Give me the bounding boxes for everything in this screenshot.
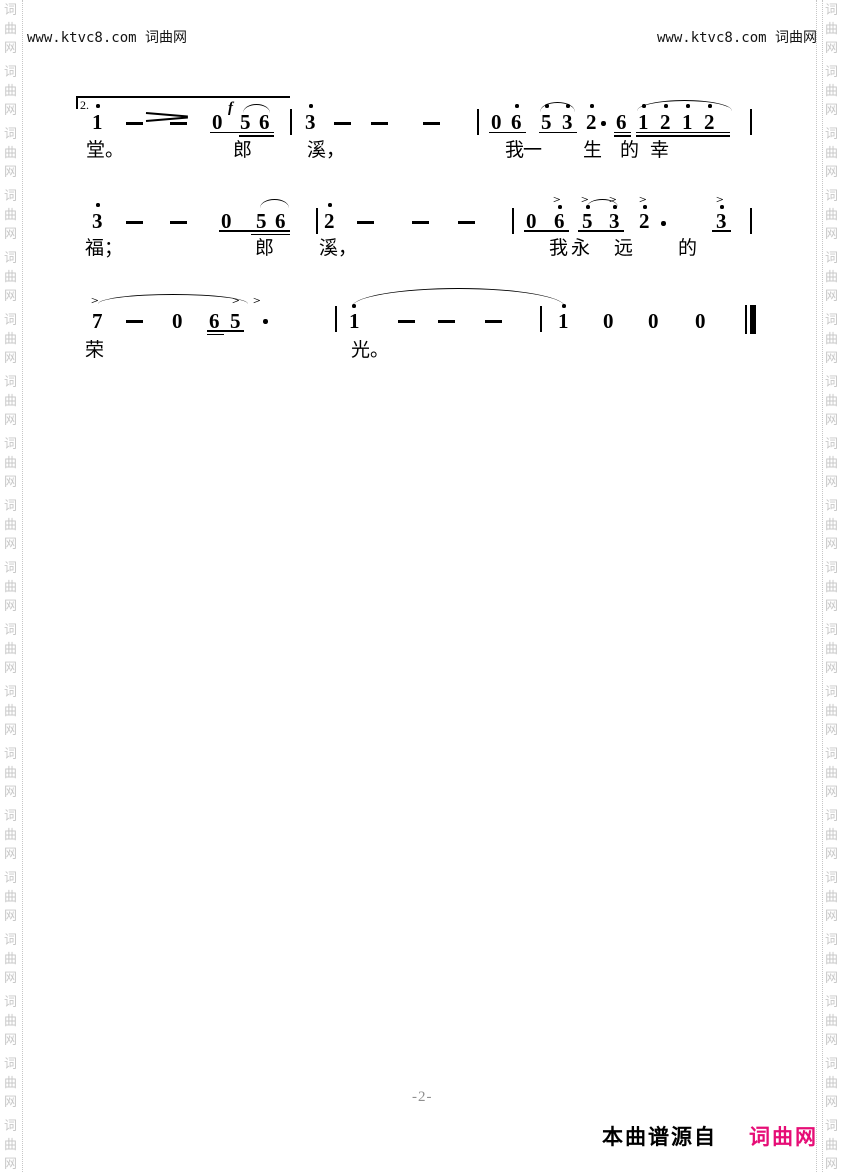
final-barline-thick (750, 305, 756, 334)
barline (290, 109, 292, 135)
lyric: 郎 (233, 141, 252, 161)
watermark-char: 曲 (825, 271, 838, 284)
note: 1 (349, 310, 360, 332)
watermark-char: 网 (4, 600, 17, 613)
note: 0 (695, 310, 706, 332)
underline (636, 132, 730, 134)
lyric: 溪， (319, 239, 357, 259)
note: 5 (240, 111, 251, 133)
note: 2 (586, 111, 597, 133)
dynamic-forte: f (228, 100, 233, 117)
underline (636, 135, 730, 137)
watermark-char: 曲 (4, 209, 17, 222)
watermark-char: 词 (825, 66, 838, 79)
lyric: 福； (85, 239, 123, 259)
watermark-char: 网 (825, 600, 838, 613)
watermark-char: 曲 (4, 147, 17, 160)
watermark-char: 曲 (4, 581, 17, 594)
note: 1 (92, 111, 103, 133)
lyric: 生 (583, 141, 602, 161)
watermark-char: 曲 (4, 519, 17, 532)
watermark-char: 网 (4, 414, 17, 427)
underline (578, 230, 624, 232)
watermark-char: 词 (825, 128, 838, 141)
watermark-char: 词 (825, 934, 838, 947)
slur (637, 100, 732, 111)
note: 0 (603, 310, 614, 332)
watermark-char: 曲 (825, 705, 838, 718)
watermark-char: 网 (4, 1096, 17, 1109)
watermark-char: 词 (4, 500, 17, 513)
note: 3 (716, 210, 727, 232)
watermark-char: 曲 (825, 85, 838, 98)
octave-dot (96, 203, 100, 207)
lyric: 远 (614, 239, 633, 259)
watermark-char: 词 (4, 252, 17, 265)
note: 0 (526, 210, 537, 232)
watermark-char: 网 (825, 476, 838, 489)
watermark-char: 词 (825, 500, 838, 513)
note: 6 (616, 111, 627, 133)
footer-source-label: 本曲谱源自 (602, 1121, 717, 1151)
watermark-char: 曲 (4, 1077, 17, 1090)
slur (540, 102, 575, 112)
underline (614, 135, 631, 137)
watermark-char: 曲 (825, 1015, 838, 1028)
watermark-char: 词 (4, 438, 17, 451)
watermark-char: 网 (825, 662, 838, 675)
watermark-char: 曲 (4, 767, 17, 780)
watermark-char: 词 (825, 376, 838, 389)
watermark-char: 曲 (4, 333, 17, 346)
lyric: 的 (620, 141, 639, 161)
watermark-char: 网 (4, 848, 17, 861)
underline (614, 132, 631, 134)
lyric: 我 (505, 141, 524, 161)
octave-dot (590, 104, 594, 108)
dash (170, 122, 187, 125)
note: 0 (648, 310, 659, 332)
watermark-char: 曲 (825, 395, 838, 408)
watermark-char: 词 (4, 1120, 17, 1133)
augmentation-dot (661, 221, 666, 226)
note: 3 (562, 111, 573, 133)
note: 2 (660, 111, 671, 133)
watermark-char: 网 (825, 42, 838, 55)
lyric: 一 (523, 141, 542, 161)
volta-tick (76, 96, 78, 109)
volta-number: 2. (80, 98, 89, 113)
watermark-char: 曲 (4, 457, 17, 470)
watermark-char: 词 (4, 314, 17, 327)
dash (458, 221, 475, 224)
underline (239, 135, 274, 137)
note: 1 (638, 111, 649, 133)
octave-dot (643, 205, 647, 209)
octave-dot (515, 104, 519, 108)
watermark-char: 网 (825, 228, 838, 241)
watermark-char: 曲 (825, 333, 838, 346)
volta-line (76, 96, 290, 98)
watermark-char: 曲 (4, 395, 17, 408)
watermark-char: 曲 (825, 829, 838, 842)
note: 6 (275, 210, 286, 232)
watermark-char: 曲 (4, 829, 17, 842)
site-url-top-left: www.ktvc8.com 词曲网 (27, 27, 187, 47)
watermark-divider (816, 0, 817, 1172)
watermark-char: 词 (4, 810, 17, 823)
barline (750, 208, 752, 234)
watermark-char: 网 (4, 724, 17, 737)
octave-dot (96, 104, 100, 108)
note: 1 (682, 111, 693, 133)
note: 6 (511, 111, 522, 133)
watermark-char: 曲 (825, 457, 838, 470)
watermark-char: 曲 (825, 1139, 838, 1152)
lyric: 郎 (255, 239, 274, 259)
watermark-char: 网 (825, 538, 838, 551)
note: 3 (92, 210, 103, 232)
watermark-char: 词 (4, 1058, 17, 1071)
page-number: -2- (412, 1089, 433, 1106)
note: 0 (212, 111, 223, 133)
watermark-char: 词 (4, 66, 17, 79)
watermark-char: 词 (4, 748, 17, 761)
watermark-char: 词 (825, 190, 838, 203)
octave-dot (720, 205, 724, 209)
watermark-char: 词 (4, 872, 17, 885)
slur (243, 104, 270, 113)
octave-dot (328, 203, 332, 207)
watermark-char: 曲 (825, 209, 838, 222)
lyric: 光。 (351, 341, 389, 361)
watermark-char: 词 (4, 686, 17, 699)
note: 0 (221, 210, 232, 232)
watermark-char: 词 (825, 872, 838, 885)
augmentation-dot (263, 319, 268, 324)
watermark-char: 曲 (4, 1139, 17, 1152)
watermark-char: 词 (4, 128, 17, 141)
watermark-char: 词 (825, 624, 838, 637)
underline (524, 230, 569, 232)
watermark-char: 网 (4, 352, 17, 365)
barline (750, 109, 752, 135)
barline (477, 109, 479, 135)
watermark-char: 词 (825, 810, 838, 823)
barline (316, 208, 318, 234)
site-url-top-right: www.ktvc8.com 词曲网 (657, 27, 817, 47)
watermark-char: 网 (825, 352, 838, 365)
dash (170, 221, 187, 224)
lyric: 溪， (307, 141, 345, 161)
watermark-divider (22, 0, 23, 1172)
watermark-char: 网 (825, 166, 838, 179)
augmentation-dot (601, 121, 606, 126)
watermark-char: 曲 (825, 767, 838, 780)
watermark-char: 曲 (825, 953, 838, 966)
underline (712, 230, 731, 232)
underline (251, 234, 290, 236)
underline (539, 132, 577, 134)
watermark-char: 词 (825, 438, 838, 451)
watermark-char: 曲 (4, 891, 17, 904)
watermark-char: 网 (4, 1034, 17, 1047)
dash (423, 122, 440, 125)
watermark-char: 网 (825, 104, 838, 117)
watermark-char: 曲 (4, 85, 17, 98)
note: 2 (639, 210, 650, 232)
dash (126, 122, 143, 125)
note: 3 (305, 111, 316, 133)
watermark-char: 网 (4, 290, 17, 303)
tie (352, 288, 565, 307)
watermark-char: 词 (825, 4, 838, 17)
watermark-char: 曲 (4, 953, 17, 966)
watermark-char: 曲 (4, 705, 17, 718)
watermark-char: 网 (825, 724, 838, 737)
note: 5 (230, 310, 241, 332)
accent-mark: > (253, 297, 261, 307)
dash (334, 122, 351, 125)
note: 6 (554, 210, 565, 232)
note: 2 (324, 210, 335, 232)
lyric: 我 (549, 239, 568, 259)
watermark-char: 网 (825, 1034, 838, 1047)
note: 1 (558, 310, 569, 332)
octave-dot (558, 205, 562, 209)
barline (540, 306, 542, 332)
note: 5 (256, 210, 267, 232)
watermark-char: 词 (4, 190, 17, 203)
watermark-char: 网 (825, 1158, 838, 1171)
watermark-char: 词 (4, 996, 17, 1009)
watermark-char: 曲 (825, 643, 838, 656)
note: 0 (491, 111, 502, 133)
barline (512, 208, 514, 234)
watermark-char: 曲 (825, 581, 838, 594)
watermark-char: 网 (4, 476, 17, 489)
slur (260, 199, 289, 208)
note: 5 (582, 210, 593, 232)
underline (207, 334, 224, 336)
underline (207, 330, 244, 332)
watermark-char: 网 (825, 972, 838, 985)
watermark-char: 网 (4, 662, 17, 675)
watermark-divider (822, 0, 823, 1172)
watermark-char: 曲 (4, 23, 17, 36)
watermark-char: 词 (4, 934, 17, 947)
watermark-char: 网 (825, 1096, 838, 1109)
final-barline-thin (745, 305, 747, 334)
watermark-char: 网 (825, 414, 838, 427)
watermark-char: 曲 (825, 147, 838, 160)
lyric: 幸 (650, 141, 669, 161)
dash (398, 320, 415, 323)
watermark-char: 词 (825, 748, 838, 761)
watermark-char: 曲 (825, 23, 838, 36)
dash (357, 221, 374, 224)
watermark-char: 网 (4, 104, 17, 117)
underline (489, 132, 526, 134)
watermark-char: 网 (825, 848, 838, 861)
watermark-char: 网 (4, 228, 17, 241)
watermark-char: 词 (825, 314, 838, 327)
watermark-char: 词 (4, 376, 17, 389)
watermark-char: 网 (4, 42, 17, 55)
note: 7 (92, 310, 103, 332)
watermark-char: 词 (825, 1058, 838, 1071)
lyric: 荣 (85, 341, 104, 361)
note: 0 (172, 310, 183, 332)
watermark-char: 词 (4, 4, 17, 17)
dash (371, 122, 388, 125)
watermark-char: 网 (4, 786, 17, 799)
watermark-char: 曲 (4, 271, 17, 284)
lyric: 堂。 (86, 141, 124, 161)
watermark-char: 网 (4, 910, 17, 923)
watermark-char: 网 (825, 786, 838, 799)
underline (210, 132, 274, 134)
barline (335, 306, 337, 332)
watermark-char: 网 (4, 166, 17, 179)
phrase-slur (98, 294, 248, 304)
watermark-char: 词 (4, 562, 17, 575)
watermark-char: 曲 (4, 1015, 17, 1028)
watermark-char: 曲 (825, 1077, 838, 1090)
note: 5 (541, 111, 552, 133)
note: 6 (259, 111, 270, 133)
dash (438, 320, 455, 323)
watermark-char: 曲 (4, 643, 17, 656)
watermark-char: 词 (825, 252, 838, 265)
hairpin-line (146, 116, 188, 121)
footer-site-name: 词曲网 (749, 1121, 818, 1151)
note: 3 (609, 210, 620, 232)
watermark-char: 词 (825, 1120, 838, 1133)
note: 6 (209, 310, 220, 332)
octave-dot (309, 104, 313, 108)
watermark-char: 曲 (825, 891, 838, 904)
watermark-char: 词 (825, 562, 838, 575)
dash (126, 221, 143, 224)
watermark-char: 词 (4, 624, 17, 637)
watermark-char: 词 (825, 686, 838, 699)
sheet-music-page: www.ktvc8.com 词曲网 www.ktvc8.com 词曲网 词词曲曲… (0, 0, 843, 1172)
watermark-char: 词 (825, 996, 838, 1009)
dash (412, 221, 429, 224)
watermark-char: 网 (825, 910, 838, 923)
lyric: 的 (678, 239, 697, 259)
dash (126, 320, 143, 323)
watermark-char: 网 (825, 290, 838, 303)
lyric: 永 (571, 239, 590, 259)
watermark-char: 网 (4, 1158, 17, 1171)
watermark-char: 曲 (825, 519, 838, 532)
watermark-char: 网 (4, 538, 17, 551)
watermark-char: 网 (4, 972, 17, 985)
note: 2 (704, 111, 715, 133)
dash (485, 320, 502, 323)
underline (219, 230, 290, 232)
